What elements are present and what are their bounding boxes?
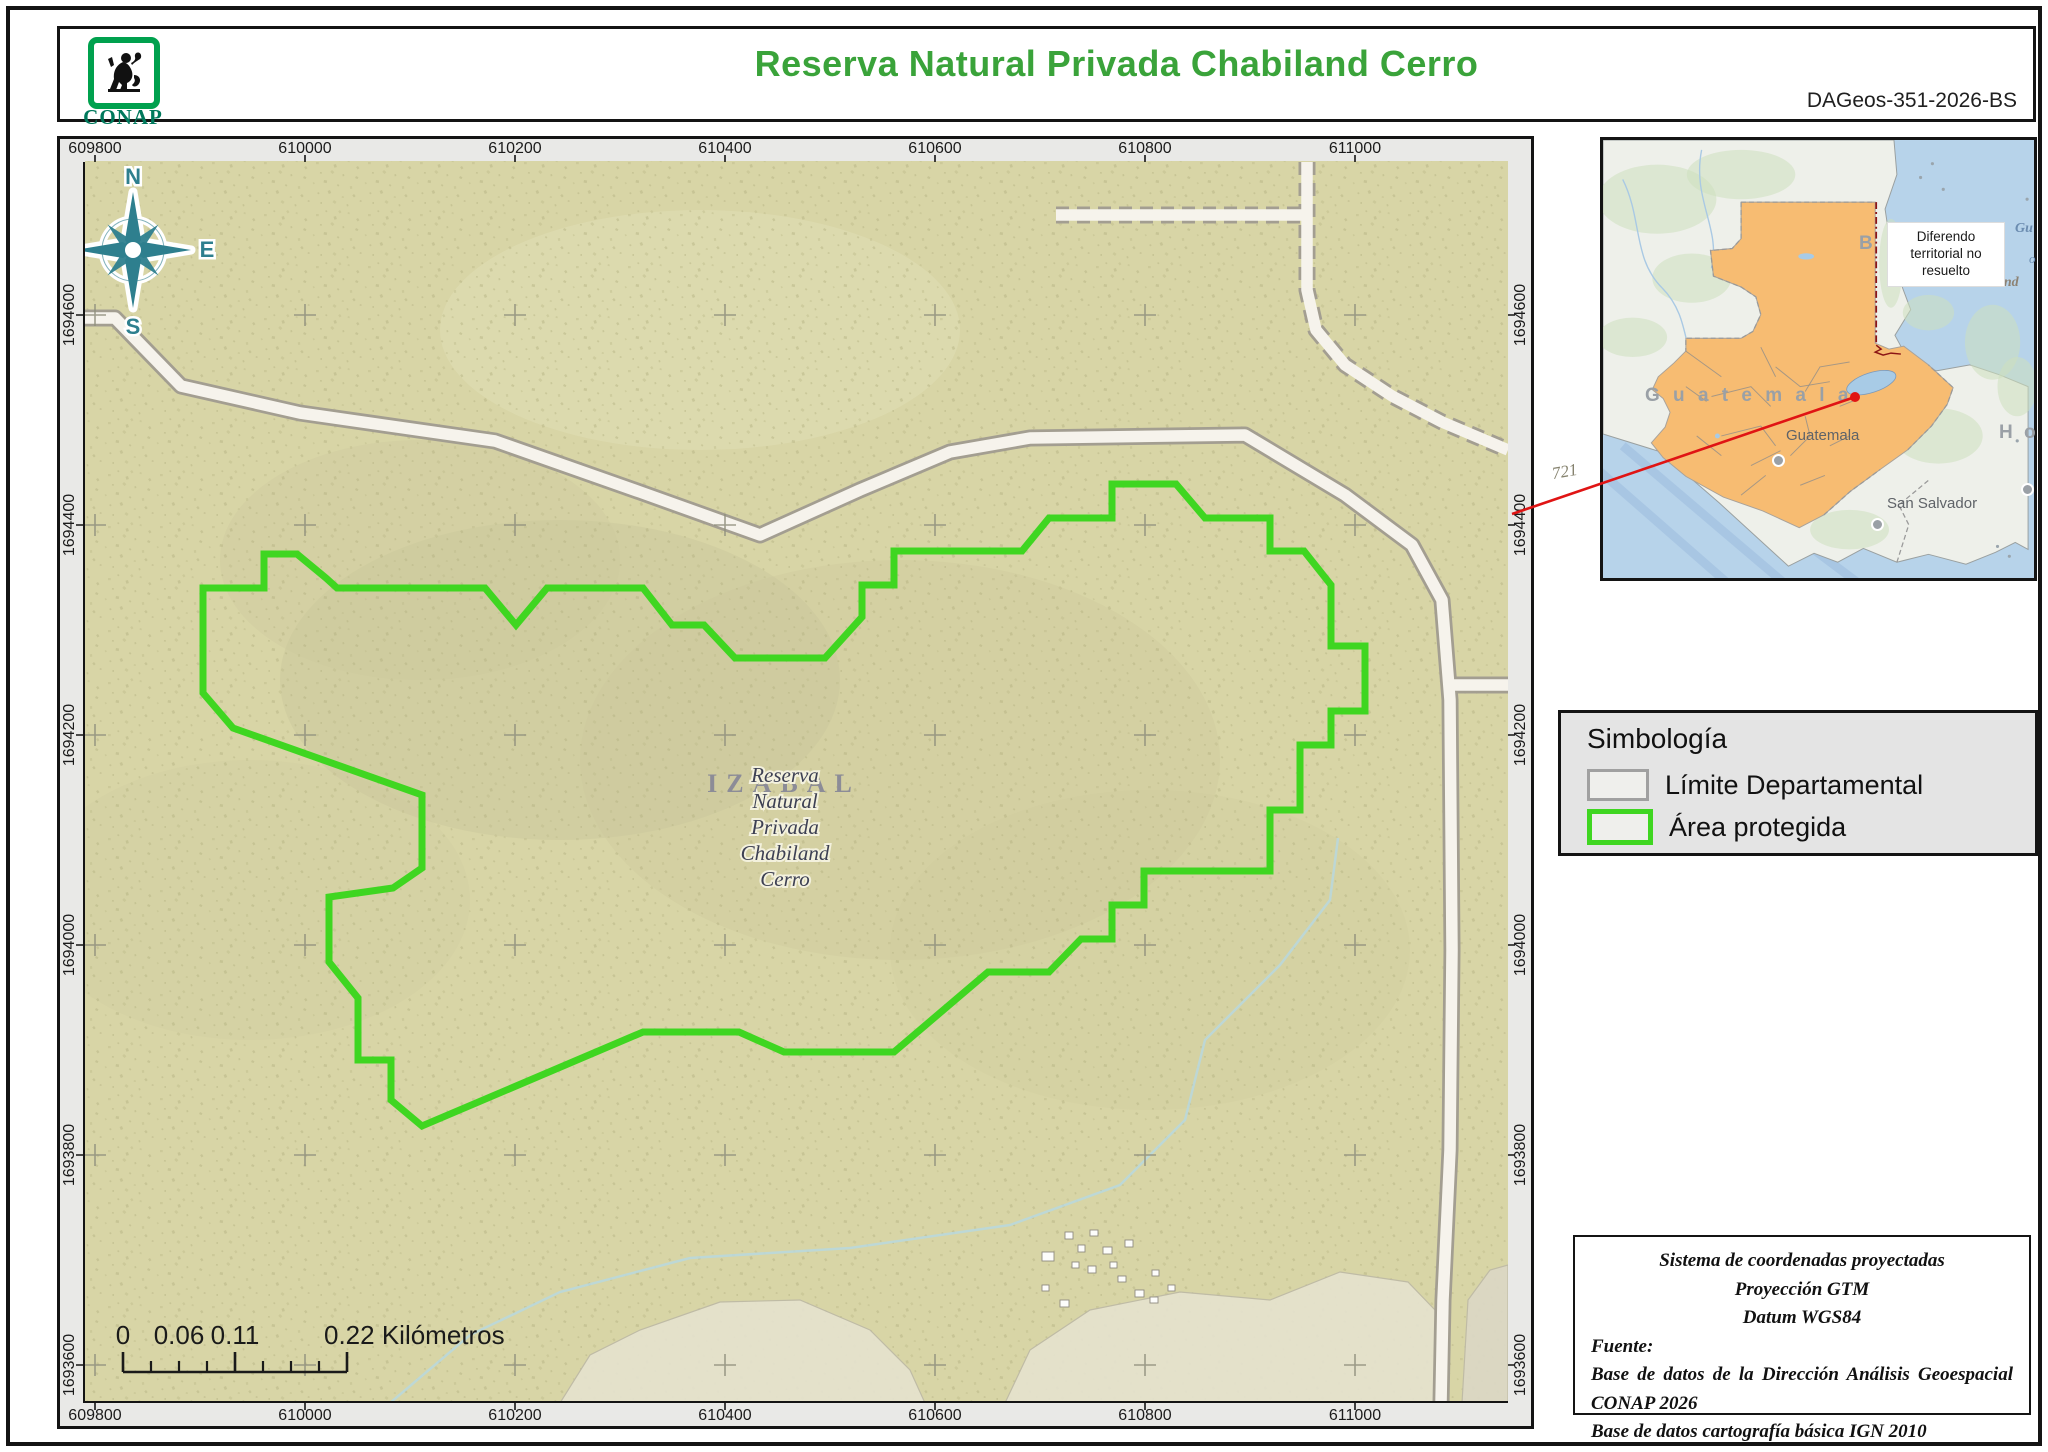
scale-bar-label: 0 xyxy=(116,1320,130,1350)
axis-label: 1694600 xyxy=(61,284,79,346)
datum-line: Datum WGS84 xyxy=(1591,1304,2013,1333)
axis-label: 1694200 xyxy=(61,704,79,766)
header: CONAP Reserva Natural Privada Chabiland … xyxy=(57,26,2036,122)
legend: Simbología Límite Departamental Área pro… xyxy=(1558,710,2038,856)
axis-label: 610000 xyxy=(278,140,331,158)
scale-bar-label: 0.06 xyxy=(154,1320,205,1350)
axis-label: 609800 xyxy=(68,1407,121,1425)
source-line-1: Base de datos de la Dirección Análisis G… xyxy=(1591,1361,2013,1418)
axis-label: 610800 xyxy=(1118,1407,1171,1425)
document-id: DAGeos-351-2026-BS xyxy=(1807,89,2017,113)
axis-label: 609800 xyxy=(68,140,121,158)
projection-line: Proyección GTM xyxy=(1591,1276,2013,1305)
legend-swatch-area-protegida xyxy=(1587,809,1653,845)
inset-gulf-fragment-1: Gu xyxy=(2015,221,2033,237)
axis-label: 1694000 xyxy=(61,914,79,976)
axis-label: 610400 xyxy=(698,1407,751,1425)
axis-label: 610600 xyxy=(908,140,961,158)
map-graphics: IZABALReservaNaturalPrivadaChabilandCerr… xyxy=(85,161,1508,1401)
locator-inset-map: G u a t e m a l a Guatemala San Salvador… xyxy=(1600,137,2037,581)
map-credits-box: Sistema de coordenadas proyectadas Proye… xyxy=(1573,1235,2031,1415)
page-title: Reserva Natural Privada Chabiland Cerro xyxy=(280,43,1953,85)
territorial-dispute-note: Diferendo territorial no resuelto xyxy=(1888,223,2004,286)
axis-label: 1694400 xyxy=(1512,494,1530,556)
axis-label: 611000 xyxy=(1329,140,1381,158)
source-line-2: Base de datos cartografía básica IGN 201… xyxy=(1591,1418,2013,1447)
scale-bar-label: 0.11 xyxy=(211,1320,260,1350)
city-dot-unlabeled xyxy=(2021,483,2034,496)
protected-area-name-label: Cerro xyxy=(760,867,809,891)
inset-belize-fragment: B xyxy=(1859,233,1873,255)
axis-label: 1694200 xyxy=(1512,704,1530,766)
scale-bar-label: 0.22 Kilómetros xyxy=(324,1320,505,1350)
axis-label: 1693800 xyxy=(1512,1124,1530,1186)
source-label: Fuente: xyxy=(1591,1333,2013,1362)
axis-label: 1693600 xyxy=(61,1334,79,1396)
city-dot-guatemala xyxy=(1772,454,1785,467)
protected-area-name-label: Natural xyxy=(751,789,818,813)
inset-country-label: G u a t e m a l a xyxy=(1645,385,1852,407)
axis-label: 1693800 xyxy=(61,1124,79,1186)
legend-title: Simbología xyxy=(1587,723,1727,755)
city-dot-san-salvador xyxy=(1871,518,1884,531)
legend-label-limite-departamental: Límite Departamental xyxy=(1665,770,1923,801)
axis-label: 1693600 xyxy=(1512,1334,1530,1396)
axis-label: 1694000 xyxy=(1512,914,1530,976)
axis-label: 610600 xyxy=(908,1407,961,1425)
legend-label-area-protegida: Área protegida xyxy=(1669,812,1846,843)
conap-logo-text: CONAP xyxy=(68,105,178,130)
crs-line: Sistema de coordenadas proyectadas xyxy=(1591,1247,2013,1276)
protected-area-name-label: Chabiland xyxy=(741,841,830,865)
protected-area-name-label: Privada xyxy=(750,815,819,839)
axis-label: 610000 xyxy=(278,1407,331,1425)
compass-letter-n: N xyxy=(125,164,141,189)
conap-logo-icon xyxy=(88,37,160,109)
axis-label: 611000 xyxy=(1329,1407,1381,1425)
inset-gulf-fragment-2: o xyxy=(2029,251,2036,267)
axis-label: 610200 xyxy=(488,140,541,158)
axis-label: 610400 xyxy=(698,140,751,158)
compass-letter-e: E xyxy=(200,237,215,262)
axis-label: 610800 xyxy=(1118,140,1171,158)
legend-swatch-limite-departamental xyxy=(1587,769,1649,801)
inset-city-label-san-salvador: San Salvador xyxy=(1887,495,1977,512)
inset-honduras-fragment: H o xyxy=(1999,422,2039,444)
map-sheet: CONAP Reserva Natural Privada Chabiland … xyxy=(0,0,2048,1452)
axis-label: 1694600 xyxy=(1512,284,1530,346)
compass-letter-s: S xyxy=(126,314,141,339)
inset-city-label-guatemala: Guatemala xyxy=(1786,427,1859,444)
protected-area-name-label: Reserva xyxy=(750,763,819,787)
axis-label: 610200 xyxy=(488,1407,541,1425)
axis-label: 1694400 xyxy=(61,494,79,556)
